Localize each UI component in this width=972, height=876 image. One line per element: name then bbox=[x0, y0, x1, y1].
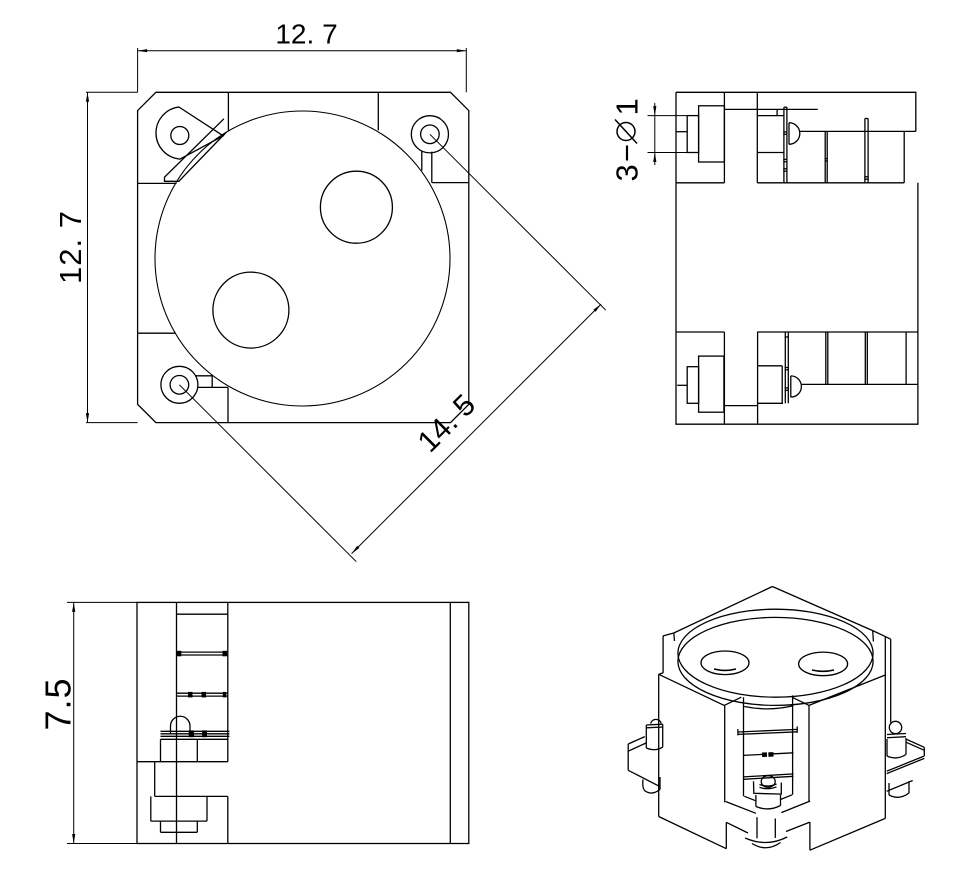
svg-text:1: 1 bbox=[610, 98, 645, 115]
svg-text:12. 7: 12. 7 bbox=[275, 19, 337, 50]
svg-text:3: 3 bbox=[610, 164, 645, 181]
svg-text:12. 7: 12. 7 bbox=[53, 210, 88, 284]
svg-text:7.5: 7.5 bbox=[38, 677, 79, 730]
